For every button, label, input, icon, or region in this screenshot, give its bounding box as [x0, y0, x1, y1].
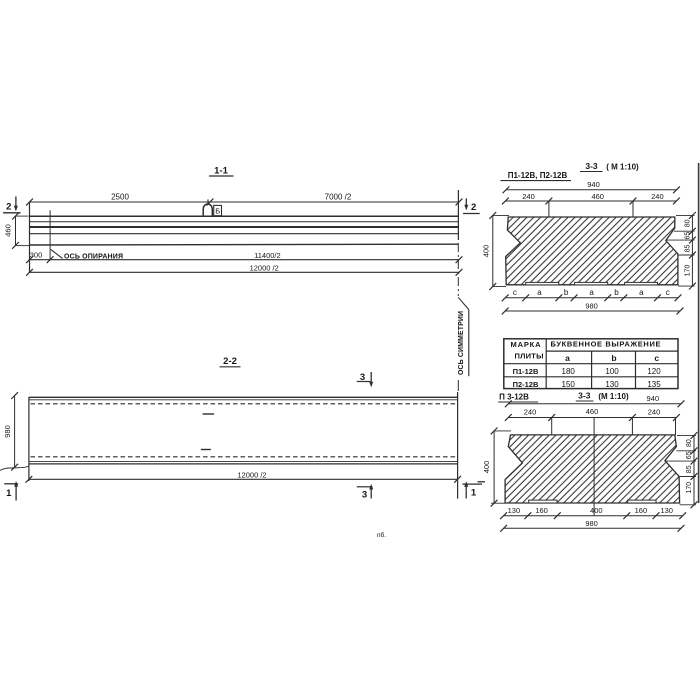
svg-text:240: 240: [524, 408, 537, 417]
svg-text:с: с: [513, 288, 517, 297]
svg-text:2500: 2500: [111, 193, 129, 202]
svg-text:а: а: [639, 288, 644, 297]
svg-text:85: 85: [686, 465, 693, 473]
svg-text:b: b: [611, 353, 616, 363]
svg-text:b: b: [564, 288, 569, 297]
svg-text:980: 980: [3, 425, 12, 438]
svg-text:( М 1:10): ( М 1:10): [606, 163, 639, 172]
svg-text:а: а: [565, 353, 570, 363]
svg-text:ПЛИТЫ: ПЛИТЫ: [515, 352, 544, 361]
svg-text:240: 240: [651, 192, 664, 201]
svg-text:Б: Б: [215, 207, 220, 216]
svg-text:П 3-12В: П 3-12В: [499, 393, 529, 402]
svg-text:3: 3: [362, 489, 367, 500]
svg-text:120: 120: [647, 367, 661, 376]
svg-text:1: 1: [6, 488, 12, 499]
svg-text:170: 170: [685, 265, 692, 277]
svg-text:3-3: 3-3: [578, 391, 591, 401]
svg-text:130: 130: [605, 380, 619, 389]
svg-text:12000 /2: 12000 /2: [250, 263, 279, 272]
svg-text:П1-12В: П1-12В: [513, 367, 539, 376]
svg-text:400: 400: [481, 245, 490, 258]
svg-text:160: 160: [635, 506, 648, 515]
svg-text:b: b: [614, 288, 619, 297]
svg-text:980: 980: [585, 519, 598, 528]
svg-text:940: 940: [587, 180, 600, 189]
svg-text:2: 2: [6, 202, 11, 213]
svg-text:2-2: 2-2: [223, 356, 237, 367]
svg-text:400: 400: [482, 461, 491, 474]
svg-text:с: с: [666, 288, 670, 297]
svg-text:65: 65: [685, 232, 692, 240]
svg-text:БУКВЕННОЕ ВЫРАЖЕНИЕ: БУКВЕННОЕ ВЫРАЖЕНИЕ: [551, 340, 661, 349]
svg-text:3-3: 3-3: [585, 161, 598, 171]
svg-text:100: 100: [605, 367, 619, 376]
svg-text:240: 240: [648, 408, 661, 417]
svg-text:240: 240: [522, 192, 535, 201]
svg-text:а: а: [589, 288, 594, 297]
svg-text:135: 135: [647, 380, 661, 389]
svg-text:170: 170: [686, 482, 693, 494]
svg-text:с: с: [654, 353, 659, 363]
svg-text:П1-12В, П2-12В: П1-12В, П2-12В: [508, 171, 568, 180]
svg-text:65: 65: [686, 451, 693, 459]
svg-text:150: 150: [562, 380, 576, 389]
svg-text:1: 1: [471, 488, 477, 499]
svg-text:7000 /2: 7000 /2: [325, 193, 352, 202]
svg-text:130: 130: [508, 506, 521, 515]
svg-text:80: 80: [686, 439, 693, 447]
svg-text:80: 80: [685, 219, 692, 227]
svg-text:1-1: 1-1: [214, 166, 228, 177]
svg-text:940: 940: [647, 394, 660, 403]
svg-text:а: а: [537, 288, 542, 297]
svg-text:180: 180: [562, 367, 576, 376]
svg-text:11400/2: 11400/2: [254, 251, 281, 260]
svg-text:460: 460: [4, 224, 13, 237]
svg-text:85: 85: [685, 245, 692, 253]
svg-text:130: 130: [660, 506, 673, 515]
svg-text:12000 /2: 12000 /2: [237, 470, 266, 479]
svg-text:160: 160: [535, 506, 548, 515]
svg-text:460: 460: [591, 192, 604, 201]
svg-text:(М 1:10): (М 1:10): [598, 392, 629, 401]
svg-text:ОСЬ СИММЕТРИИ: ОСЬ СИММЕТРИИ: [458, 311, 465, 375]
svg-text:2: 2: [471, 202, 476, 213]
svg-text:МАРКА: МАРКА: [511, 340, 542, 349]
svg-text:П2-12В: П2-12В: [513, 380, 539, 389]
svg-text:460: 460: [586, 407, 599, 416]
svg-text:400: 400: [590, 506, 603, 515]
svg-text:980: 980: [585, 302, 598, 311]
svg-text:пб.: пб.: [377, 531, 386, 539]
